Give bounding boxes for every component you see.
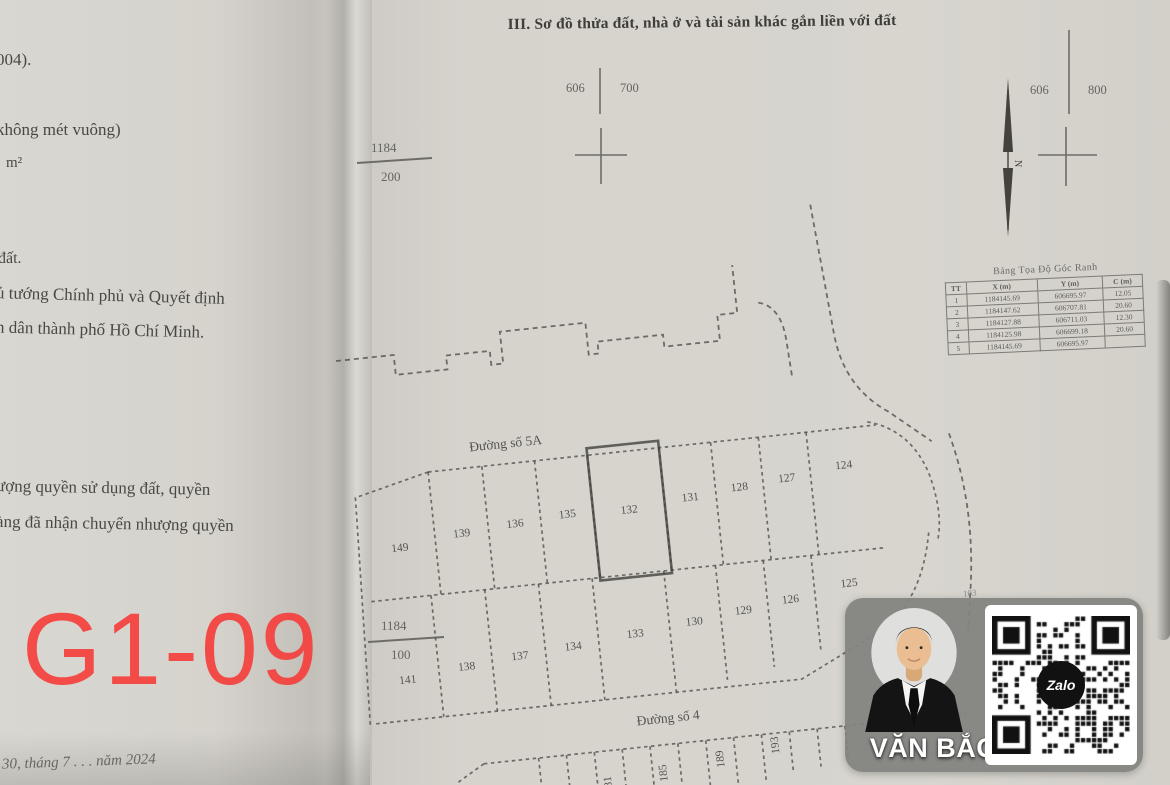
plot-label: 135 xyxy=(558,508,577,522)
cell: 2 xyxy=(946,306,967,319)
building-outline xyxy=(330,265,740,381)
plot-label: 131 xyxy=(681,491,700,505)
zalo-qr-code xyxy=(985,605,1137,765)
eye xyxy=(905,646,908,649)
agent-photo xyxy=(863,606,965,732)
cell: 1 xyxy=(946,294,967,307)
plot-label: 139 xyxy=(453,527,472,541)
street-4-label: Đường số 4 xyxy=(636,707,701,729)
street-5a-label: Đường số 5A xyxy=(468,432,542,455)
grid-frac-den: 200 xyxy=(381,169,401,184)
plot-label: 129 xyxy=(734,604,753,618)
grid-label: 800 xyxy=(1088,83,1107,97)
eye xyxy=(920,646,923,649)
plot-label-rotated: 185 xyxy=(657,764,671,783)
col-header: TT xyxy=(945,282,966,295)
cell xyxy=(1105,334,1145,348)
grid-frac-num: 1184 xyxy=(371,140,397,155)
plot-label: 134 xyxy=(564,640,583,654)
plot-label-rotated: 193 xyxy=(769,736,783,755)
plot-label-rotated: 181 xyxy=(602,775,616,785)
paper-edge-shadow xyxy=(1156,280,1170,640)
grid-label: 700 xyxy=(620,81,639,95)
plot-label: 130 xyxy=(685,615,704,629)
face xyxy=(897,627,932,670)
cell: 3 xyxy=(947,318,968,331)
cell: 606695.97 xyxy=(1040,336,1106,351)
plot-label: 126 xyxy=(781,593,800,607)
grid-frac-num: 1184 xyxy=(381,618,407,633)
doc-text: àng đã nhận chuyển nhượng quyền xyxy=(0,512,234,536)
plot-label: 141 xyxy=(399,673,418,687)
plot-label: 136 xyxy=(506,517,525,531)
doc-text: ượng quyền sử dụng đất, quyền xyxy=(0,476,211,500)
doc-text: 004). xyxy=(0,50,31,70)
plot-label: 124 xyxy=(835,459,854,473)
plot-label: 127 xyxy=(778,472,797,486)
north-label: N xyxy=(1012,160,1023,167)
road-edge-right xyxy=(810,195,931,452)
grid-label: 606 xyxy=(1030,83,1049,97)
coordinate-table: Bảng Tọa Độ Góc Ranh TT X (m) Y (m) C (m… xyxy=(944,260,1150,356)
doc-text: đất. xyxy=(0,250,22,268)
plot-label: 138 xyxy=(458,660,477,674)
fraction-top-bar xyxy=(357,158,432,163)
plot-label-rotated: 189 xyxy=(714,750,728,769)
doc-text: không mét vuông) xyxy=(0,120,121,140)
zalo-qr-canvas xyxy=(992,616,1130,754)
plot-label: 133 xyxy=(626,627,645,641)
fraction-bottom-bar xyxy=(368,637,444,642)
road-corner-curve xyxy=(758,300,792,380)
cell: 1184145.69 xyxy=(968,339,1040,354)
plot-label-subject: 132 xyxy=(620,503,639,517)
north-arrow-icon xyxy=(1003,78,1013,237)
grid-label: 606 xyxy=(566,81,585,95)
plot-label: 137 xyxy=(511,650,530,664)
plot-code-watermark: G1-09 xyxy=(22,598,321,700)
plot-label: 128 xyxy=(730,481,749,495)
cell: 5 xyxy=(948,342,969,355)
grid-frac-den: 100 xyxy=(391,647,411,662)
cell: 4 xyxy=(947,330,968,343)
plot-label: 149 xyxy=(391,541,410,555)
paper-bottom-shadow xyxy=(0,732,370,785)
plot-label: 125 xyxy=(840,577,859,591)
doc-text: m² xyxy=(6,155,22,172)
agent-card: VĂN BẮC Zalo xyxy=(845,598,1143,772)
